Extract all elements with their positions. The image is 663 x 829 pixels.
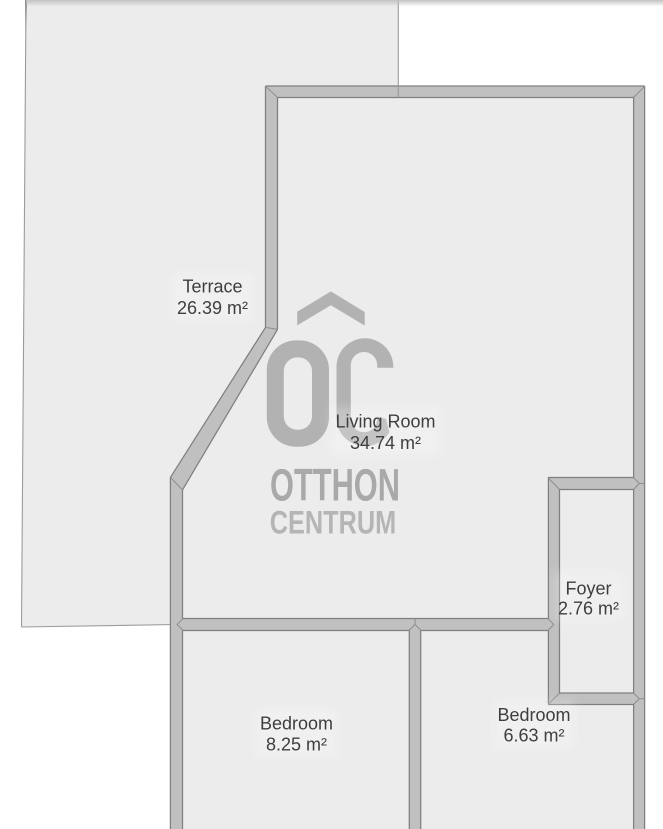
svg-text:Bedroom: Bedroom xyxy=(497,705,570,725)
svg-text:2.76 m²: 2.76 m² xyxy=(558,599,619,619)
svg-text:Terrace: Terrace xyxy=(182,277,242,297)
svg-text:34.74 m²: 34.74 m² xyxy=(350,433,421,453)
svg-text:CENTRUM: CENTRUM xyxy=(270,505,397,541)
svg-text:Living Room: Living Room xyxy=(335,412,435,432)
svg-text:6.63 m²: 6.63 m² xyxy=(503,725,564,745)
svg-text:Bedroom: Bedroom xyxy=(260,713,333,733)
svg-text:8.25 m²: 8.25 m² xyxy=(266,734,327,754)
svg-text:OTTHON: OTTHON xyxy=(270,459,400,510)
svg-text:26.39 m²: 26.39 m² xyxy=(177,298,248,318)
svg-text:Foyer: Foyer xyxy=(565,578,611,598)
